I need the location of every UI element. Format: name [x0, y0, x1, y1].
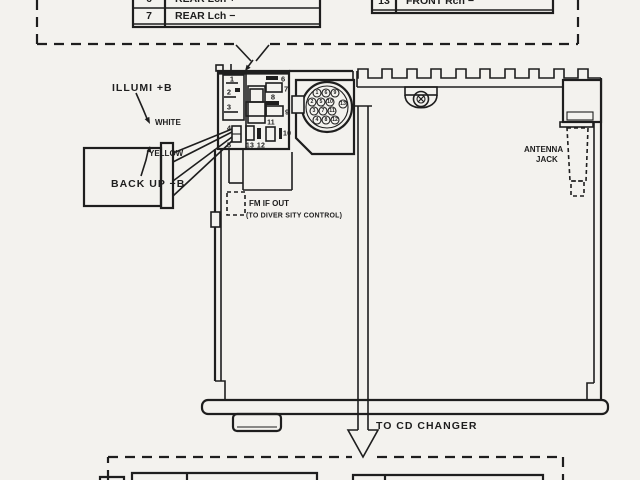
din-pin: 7 [322, 108, 325, 114]
to-cd-changer-label: TO CD CHANGER [376, 420, 477, 432]
antenna-jack-label-line2: JACK [536, 155, 558, 164]
table-cell-label: REAR Lch − [175, 10, 235, 22]
fm-connector [227, 192, 245, 215]
bottom-table-left [132, 473, 317, 480]
din-pin: 6 [325, 90, 328, 96]
backup-label: BACK UP +B [111, 178, 185, 190]
bottom-rail [202, 400, 608, 414]
pin-table-rear: 6 REAR Lch + 7 REAR Lch − [133, 0, 320, 27]
din-pin: 9 [334, 90, 337, 96]
din-pin: 13 [340, 101, 346, 107]
wire-callouts: ILLUMI +B WHITE YELLOW BACK UP +B [111, 82, 185, 190]
din-pin: 5 [320, 99, 323, 105]
din-keyway [292, 96, 304, 113]
din-pin: 1 [316, 90, 319, 96]
block-pin-6: 6 [281, 75, 285, 84]
din-pin: 8 [325, 117, 328, 123]
diversity-label: (TO DIVER SITY CONTROL) [246, 213, 342, 220]
table-cell-label: REAR Lch + [175, 0, 235, 5]
illumi-label: ILLUMI +B [112, 82, 173, 94]
block-pin-7: 7 [284, 85, 288, 94]
connector-block: 1 2 3 6 7 8 9 4 5 13 12 11 10 [216, 64, 292, 190]
power-plug [84, 129, 232, 208]
block-pin-9: 9 [285, 108, 289, 117]
cd-changer-arrow: TO CD CHANGER [348, 106, 477, 457]
castellated-edge [357, 69, 601, 78]
block-pin-8: 8 [271, 93, 275, 102]
block-pin-10: 10 [283, 131, 291, 138]
din-pin: 10 [327, 99, 333, 105]
din-pin: 3 [313, 108, 316, 114]
table-cell-label: FRONT Rch − [406, 0, 474, 7]
antenna-mount [563, 80, 601, 122]
fm-if-out-label: FM IF OUT [249, 199, 289, 208]
block-pin-13: 13 [246, 143, 254, 150]
block-pin-3: 3 [227, 103, 231, 112]
table-cell-pin: 13 [378, 0, 390, 7]
din-connector: 1 6 9 2 5 10 13 3 7 11 4 8 12 [292, 80, 354, 154]
block-pin-12: 12 [257, 143, 265, 150]
yellow-wire-label: YELLOW [149, 149, 184, 158]
bottom-table-right [353, 475, 543, 480]
table-cell-pin: 7 [146, 10, 152, 22]
block-pin-1: 1 [230, 75, 234, 84]
callout-pointer-arrow [236, 45, 269, 71]
table-cell-pin: 6 [146, 0, 152, 5]
bottom-foot [233, 414, 281, 431]
antenna-jack-label-line1: ANTENNA [524, 145, 563, 154]
din-pin: 11 [329, 108, 335, 114]
screw-grommet [405, 87, 437, 108]
din-pin: 4 [316, 117, 319, 123]
wiring-diagram: 6 REAR Lch + 7 REAR Lch − 13 FRONT Rch − [0, 0, 640, 480]
white-wire-label: WHITE [155, 118, 181, 127]
bottom-dashed-box [100, 457, 563, 480]
block-pin-11: 11 [267, 120, 275, 127]
din-pin: 2 [311, 99, 314, 105]
din-pin: 12 [332, 117, 338, 123]
pin-table-front: 13 FRONT Rch − [372, 0, 553, 13]
block-pin-2: 2 [227, 88, 231, 97]
fm-if-out: FM IF OUT (TO DIVER SITY CONTROL) [227, 149, 342, 220]
antenna-jack: ANTENNA JACK [524, 80, 601, 196]
left-edge-clip [211, 212, 220, 227]
